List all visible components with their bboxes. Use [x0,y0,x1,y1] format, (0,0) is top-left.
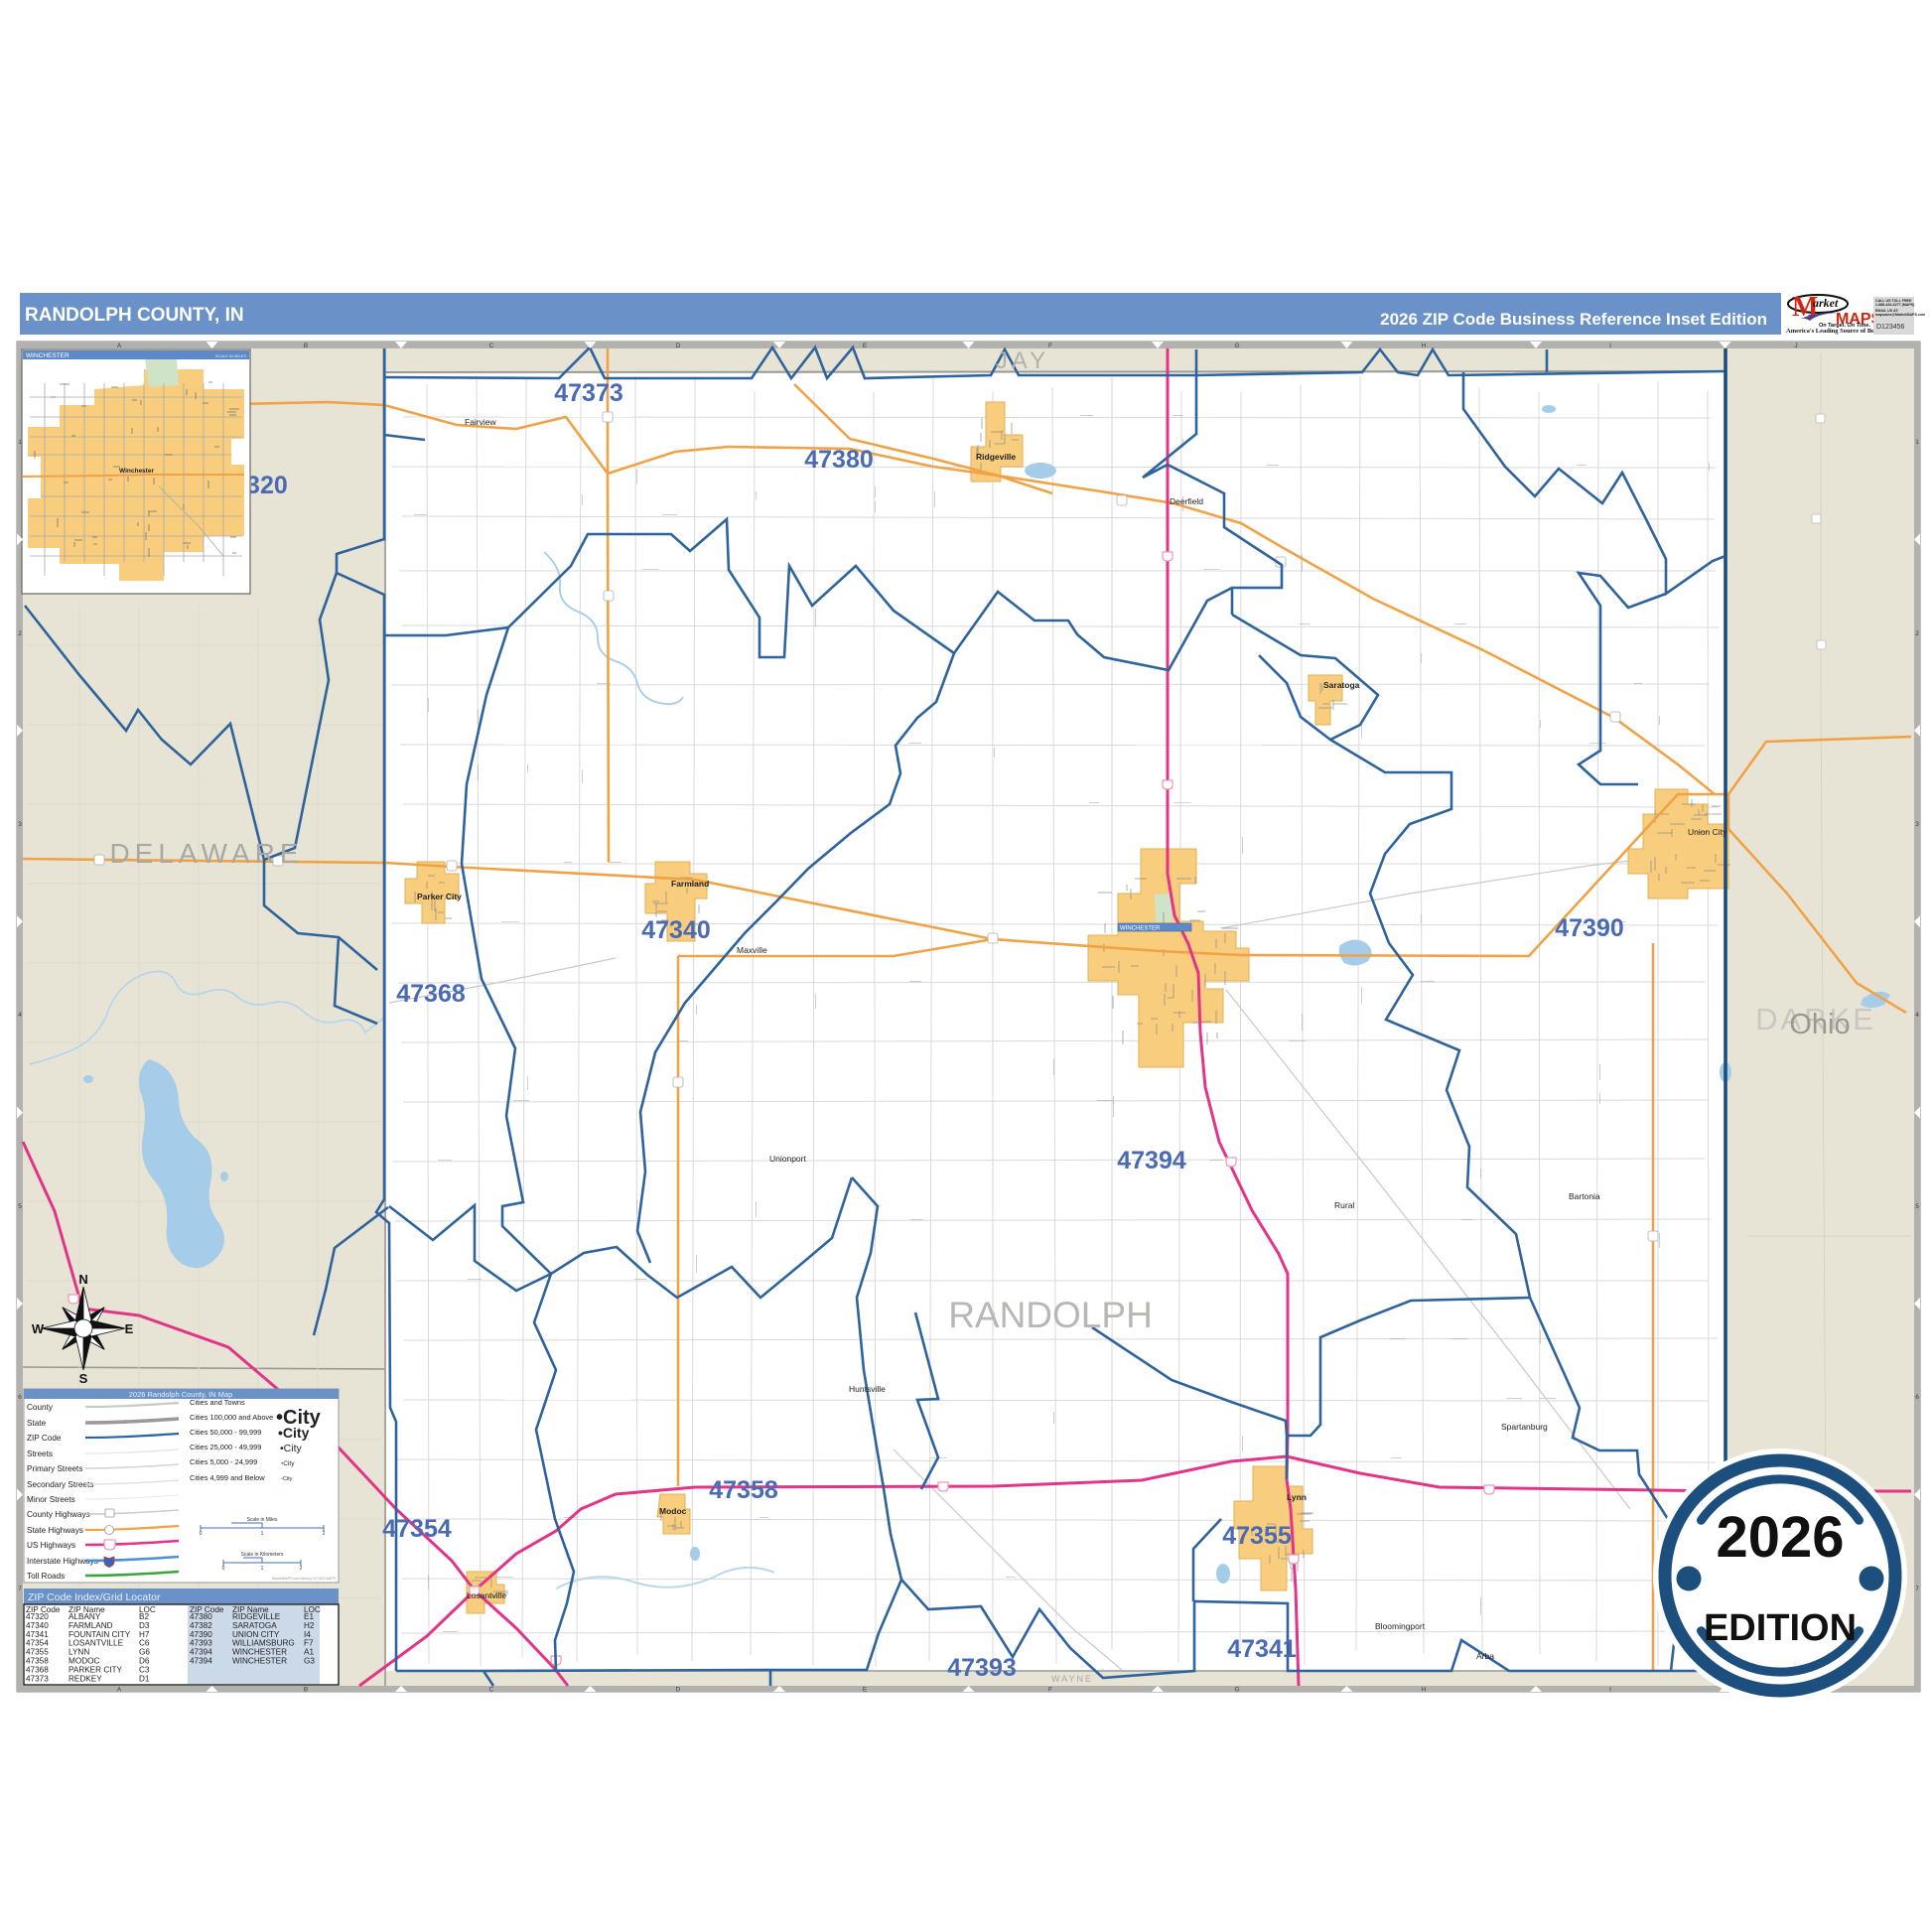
svg-text:Secondary Streets: Secondary Streets [27,1480,93,1489]
svg-text:H: H [1422,1687,1427,1694]
svg-text:Cities 100,000 and Above: Cities 100,000 and Above [190,1413,273,1422]
svg-text:3: 3 [18,821,22,828]
svg-text:C: C [489,343,494,349]
svg-text:MarketMAPS.com Albany, NY 800: MarketMAPS.com Albany, NY 800-MAPS [272,1577,337,1581]
svg-text:S: S [79,1371,88,1386]
svg-text:E1: E1 [304,1612,314,1621]
svg-text:E: E [125,1321,134,1336]
svg-text:Modoc: Modoc [659,1506,687,1516]
svg-text:Huntsville: Huntsville [849,1384,886,1394]
svg-text:47380: 47380 [804,446,874,474]
svg-text:•City: •City [281,1460,295,1467]
svg-text:Maxville: Maxville [737,945,767,955]
svg-text:Cities 50,000 - 99,999: Cities 50,000 - 99,999 [190,1428,261,1437]
svg-text:WINCHESTER: WINCHESTER [1120,926,1161,932]
svg-text:1-888-434-6277 (MAPS): 1-888-434-6277 (MAPS) [1875,303,1915,307]
svg-text:Farmland: Farmland [671,879,709,889]
svg-text:Cities 5,000 - 24,999: Cities 5,000 - 24,999 [190,1457,257,1466]
svg-text:7: 7 [1915,1586,1919,1592]
svg-text:G: G [1234,1687,1239,1694]
svg-text:47320: 47320 [26,1612,49,1621]
svg-text:2: 2 [323,1531,326,1537]
svg-text:2: 2 [300,1566,303,1572]
svg-text:47394: 47394 [190,1657,212,1666]
svg-text:47390: 47390 [190,1630,212,1639]
svg-text:D: D [676,343,681,349]
svg-text:1: 1 [1915,439,1919,446]
svg-text:H2: H2 [304,1621,315,1630]
svg-text:7: 7 [18,1586,22,1592]
svg-text:arket: arket [1813,296,1839,310]
svg-text:Union City: Union City [1688,827,1727,837]
svg-text:I: I [1609,1687,1611,1694]
svg-text:1: 1 [261,1566,264,1572]
svg-text:H7: H7 [139,1630,150,1639]
svg-text:47373: 47373 [26,1674,49,1683]
svg-text:Streets: Streets [27,1449,53,1458]
svg-text:47393: 47393 [190,1639,212,1648]
svg-text:47355: 47355 [26,1648,49,1657]
svg-text:RANDOLPH COUNTY, IN: RANDOLPH COUNTY, IN [25,305,244,326]
svg-text:G6: G6 [139,1648,150,1657]
svg-text:SCALE IN MILES: SCALE IN MILES [215,353,247,358]
svg-text:E: E [863,343,868,349]
svg-text:US Highways: US Highways [27,1541,75,1550]
svg-text:6: 6 [18,1394,22,1401]
svg-text:County Highways: County Highways [27,1510,90,1519]
svg-text:Scale in Kilometers: Scale in Kilometers [241,1552,284,1558]
svg-text:C: C [489,1687,494,1694]
svg-text:WINCHESTER: WINCHESTER [232,1657,287,1666]
svg-text:0: 0 [222,1566,225,1572]
svg-text:47394: 47394 [190,1648,212,1657]
svg-text:47394: 47394 [1117,1147,1186,1174]
svg-text:47340: 47340 [641,916,711,944]
svg-text:47340: 47340 [26,1621,49,1630]
svg-text:2: 2 [18,630,22,637]
svg-text:47358: 47358 [709,1476,778,1504]
svg-text:B: B [304,1687,308,1694]
svg-text:47368: 47368 [26,1665,49,1674]
svg-text:1: 1 [261,1531,264,1537]
svg-text:REDKEY: REDKEY [69,1674,102,1683]
svg-text:Saratoga: Saratoga [1323,680,1360,690]
svg-text:SARATOGA: SARATOGA [232,1621,277,1630]
svg-text:C3: C3 [139,1665,150,1674]
svg-text:Bloomingport: Bloomingport [1375,1621,1426,1631]
svg-text:4: 4 [1915,1012,1919,1019]
svg-text:ZIP Code: ZIP Code [27,1434,62,1443]
svg-text:D123456: D123456 [1876,324,1905,331]
svg-text:C6: C6 [139,1639,150,1648]
svg-text:RIDGEVILLE: RIDGEVILLE [232,1612,281,1621]
svg-text:Minor Streets: Minor Streets [27,1495,75,1504]
svg-text:UNION CITY: UNION CITY [232,1630,280,1639]
svg-text:D3: D3 [139,1621,150,1630]
svg-text:Arba: Arba [1476,1651,1494,1661]
svg-text:47354: 47354 [382,1515,452,1543]
svg-text:1: 1 [18,439,22,446]
svg-text:Parker City: Parker City [417,892,462,901]
svg-text:47393: 47393 [947,1654,1017,1682]
svg-text:ZIP Code Index/Grid Locator: ZIP Code Index/Grid Locator [28,1591,161,1603]
svg-text:Toll Roads: Toll Roads [27,1572,65,1581]
svg-text:47380: 47380 [190,1612,212,1621]
svg-text:6: 6 [1915,1394,1919,1401]
svg-text:N: N [78,1272,87,1287]
svg-text:F: F [1048,1687,1052,1694]
svg-text:RANDOLPH: RANDOLPH [948,1295,1153,1335]
svg-text:County: County [27,1403,54,1412]
svg-text:Ohio: Ohio [1789,1009,1850,1040]
svg-text:FARMLAND: FARMLAND [69,1621,113,1630]
svg-text:•City: •City [278,1425,310,1441]
svg-text:47354: 47354 [26,1639,49,1648]
svg-text:47358: 47358 [26,1657,49,1666]
svg-text:47382: 47382 [190,1621,212,1630]
svg-text:Bartonia: Bartonia [1569,1191,1600,1201]
svg-text:Primary Streets: Primary Streets [27,1464,82,1473]
svg-text:LYNN: LYNN [69,1648,89,1657]
svg-text:47341: 47341 [26,1630,49,1639]
svg-text:4: 4 [18,1012,22,1019]
svg-text:F7: F7 [304,1639,314,1648]
svg-text:Cities 25,000 - 49,999: Cities 25,000 - 49,999 [190,1443,261,1451]
svg-text:47390: 47390 [1555,914,1624,942]
svg-text:DELAWARE: DELAWARE [109,838,303,869]
svg-text:WAYNE: WAYNE [1051,1674,1093,1684]
svg-text:Cities and Towns: Cities and Towns [190,1398,245,1407]
svg-text:Losantville: Losantville [467,1590,506,1600]
svg-text:G: G [1234,343,1239,349]
svg-text:D: D [676,1687,681,1694]
svg-text:JAY: JAY [996,347,1049,374]
svg-text:I4: I4 [304,1630,311,1639]
svg-text:PARKER CITY: PARKER CITY [69,1665,123,1674]
svg-text:A: A [117,1687,122,1694]
svg-text:Scale in Miles: Scale in Miles [247,1517,278,1523]
svg-text:47341: 47341 [1227,1635,1297,1663]
svg-text:State Highways: State Highways [27,1526,83,1535]
svg-text:•City: •City [280,1443,303,1454]
svg-text:WINCHESTER: WINCHESTER [232,1648,287,1657]
svg-text:2026: 2026 [1716,1505,1844,1570]
svg-text:B: B [304,343,308,349]
svg-text:Cities 4,999 and Below: Cities 4,999 and Below [190,1473,265,1482]
svg-text:•City: •City [281,1476,293,1482]
svg-text:H: H [1422,343,1427,349]
svg-text:47373: 47373 [554,379,623,407]
svg-text:Deerfield: Deerfield [1170,496,1203,506]
svg-text:B2: B2 [139,1612,149,1621]
svg-text:Fairview: Fairview [465,417,497,427]
svg-text:D1: D1 [139,1674,150,1683]
svg-text:3: 3 [1915,821,1919,828]
svg-text:J: J [1794,343,1797,349]
svg-text:W: W [32,1321,45,1336]
svg-text:Lynn: Lynn [1287,1492,1307,1502]
svg-text:Unionport: Unionport [769,1154,806,1164]
svg-text:Rural: Rural [1334,1200,1354,1210]
svg-text:F: F [1048,343,1052,349]
svg-text:EDITION: EDITION [1704,1607,1857,1649]
svg-text:47355: 47355 [1222,1522,1292,1550]
svg-text:5: 5 [18,1203,22,1210]
svg-text:I: I [1609,343,1611,349]
svg-text:0: 0 [200,1531,203,1537]
svg-text:ALBANY: ALBANY [69,1612,101,1621]
svg-text:Ridgeville: Ridgeville [976,452,1016,462]
svg-text:5: 5 [1915,1203,1919,1210]
svg-text:MODOC: MODOC [69,1657,99,1666]
svg-text:47368: 47368 [396,980,466,1008]
svg-text:A1: A1 [304,1648,314,1657]
svg-text:FOUNTAIN CITY: FOUNTAIN CITY [69,1630,131,1639]
svg-text:2: 2 [1915,630,1919,637]
svg-text:D6: D6 [139,1657,150,1666]
svg-text:Winchester: Winchester [119,468,154,475]
svg-text:E: E [863,1687,868,1694]
svg-text:2026 ZIP Code Business Referen: 2026 ZIP Code Business Reference Inset E… [1380,310,1767,329]
svg-text:WINCHESTER: WINCHESTER [26,352,69,359]
svg-text:mapsales@MarketMAPS.com: mapsales@MarketMAPS.com [1875,313,1925,317]
svg-text:LOSANTVILLE: LOSANTVILLE [69,1639,124,1648]
svg-text:A: A [117,343,122,349]
svg-text:State: State [27,1419,47,1428]
svg-text:WILLIAMSBURG: WILLIAMSBURG [232,1639,295,1648]
svg-text:G3: G3 [304,1657,315,1666]
svg-text:Spartanburg: Spartanburg [1501,1422,1548,1432]
